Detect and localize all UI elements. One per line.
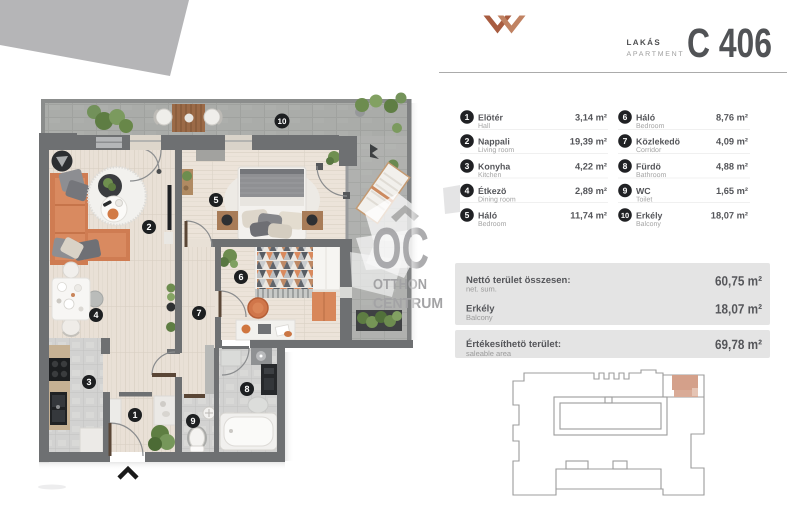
svg-text:9: 9	[623, 186, 628, 196]
svg-text:8,76 m²: 8,76 m²	[716, 113, 748, 123]
svg-text:4: 4	[465, 186, 470, 196]
svg-text:18,07 m²: 18,07 m²	[711, 211, 748, 221]
svg-text:Elötér: Elötér	[478, 113, 504, 123]
svg-text:Nappali: Nappali	[478, 137, 510, 147]
svg-text:WC: WC	[636, 186, 651, 196]
svg-text:3,14 m²: 3,14 m²	[575, 113, 607, 123]
svg-text:9: 9	[190, 416, 195, 426]
svg-text:Bedroom: Bedroom	[478, 220, 507, 228]
svg-text:60,75 m²: 60,75 m²	[715, 274, 762, 289]
svg-text:6: 6	[238, 272, 243, 282]
svg-text:Dining room: Dining room	[478, 196, 516, 204]
svg-text:69,78 m²: 69,78 m²	[715, 337, 762, 352]
svg-text:Bathroom: Bathroom	[636, 171, 667, 179]
svg-text:Erkély: Erkély	[636, 211, 663, 221]
svg-text:4,88 m²: 4,88 m²	[716, 162, 748, 172]
svg-text:Bedroom: Bedroom	[636, 122, 665, 130]
svg-text:Corridor: Corridor	[636, 146, 662, 154]
svg-text:4: 4	[93, 310, 98, 320]
svg-text:Balcony: Balcony	[636, 220, 661, 228]
svg-text:6: 6	[623, 112, 628, 122]
svg-text:Hall: Hall	[478, 122, 491, 130]
svg-text:APARTMENT: APARTMENT	[627, 51, 685, 58]
svg-text:1: 1	[132, 410, 137, 420]
svg-text:1,65 m²: 1,65 m²	[716, 186, 748, 196]
svg-text:18,07 m²: 18,07 m²	[715, 302, 762, 317]
svg-text:2: 2	[465, 136, 470, 146]
svg-text:Háló: Háló	[636, 113, 656, 123]
svg-text:5: 5	[465, 210, 470, 220]
svg-text:10: 10	[278, 117, 287, 126]
svg-text:Living room: Living room	[478, 146, 514, 154]
svg-text:19,39 m²: 19,39 m²	[570, 137, 607, 147]
svg-text:4,22 m²: 4,22 m²	[575, 162, 607, 172]
svg-text:10: 10	[621, 211, 629, 220]
svg-text:C 406: C 406	[687, 20, 772, 66]
svg-text:4,09 m²: 4,09 m²	[716, 137, 748, 147]
svg-text:3: 3	[465, 161, 470, 171]
svg-text:5: 5	[213, 195, 218, 205]
svg-text:net. sum.: net. sum.	[466, 285, 497, 294]
svg-text:1: 1	[465, 112, 470, 122]
svg-text:Háló: Háló	[478, 211, 498, 221]
svg-text:8: 8	[244, 384, 249, 394]
svg-text:2: 2	[146, 222, 151, 232]
svg-text:Kitchen: Kitchen	[478, 171, 501, 179]
svg-text:3: 3	[86, 377, 91, 387]
svg-text:saleable area: saleable area	[466, 349, 512, 358]
svg-text:Konyha: Konyha	[478, 162, 510, 172]
svg-text:LAKÁS: LAKÁS	[627, 37, 662, 47]
svg-text:7: 7	[196, 308, 201, 318]
svg-text:8: 8	[623, 161, 628, 171]
svg-text:OC: OC	[372, 216, 429, 281]
svg-text:11,74 m²: 11,74 m²	[570, 211, 607, 221]
svg-text:2,89 m²: 2,89 m²	[575, 186, 607, 196]
svg-text:Étkezö: Étkezö	[478, 186, 507, 196]
svg-text:Toilet: Toilet	[636, 196, 652, 204]
svg-text:CENTRUM: CENTRUM	[373, 296, 443, 312]
svg-text:Fürdö: Fürdö	[636, 162, 662, 172]
svg-text:Közlekedö: Közlekedö	[636, 137, 681, 147]
svg-text:Balcony: Balcony	[466, 313, 493, 322]
svg-text:7: 7	[623, 136, 628, 146]
